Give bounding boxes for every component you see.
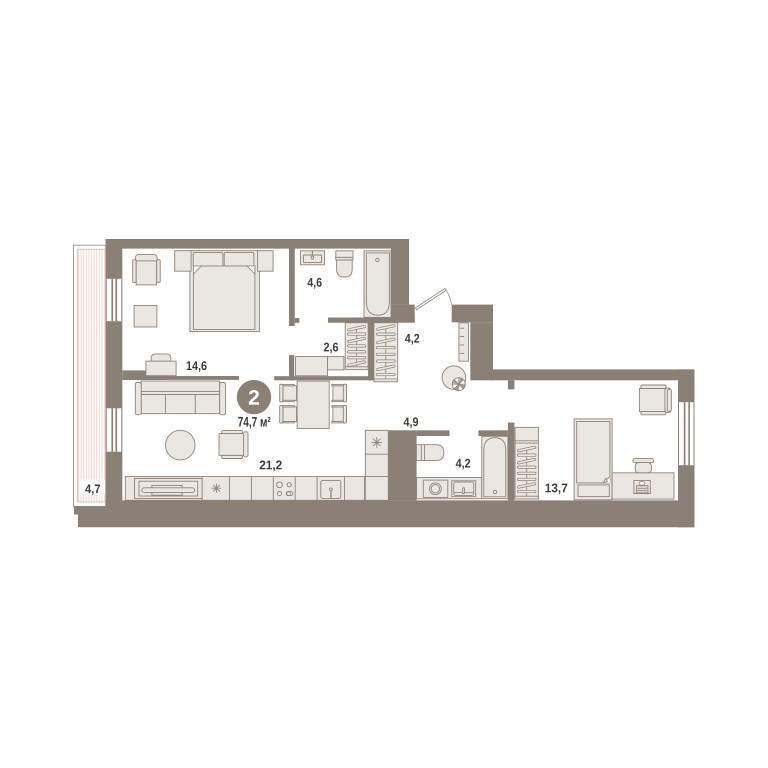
- svg-text:2: 2: [248, 387, 260, 410]
- svg-text:4,2: 4,2: [405, 332, 420, 346]
- svg-text:21,2: 21,2: [259, 458, 282, 472]
- svg-text:4,6: 4,6: [307, 276, 322, 290]
- svg-text:4,9: 4,9: [403, 415, 418, 429]
- svg-text:4,2: 4,2: [456, 456, 471, 470]
- svg-text:13,7: 13,7: [545, 481, 568, 495]
- svg-text:74,7 м²: 74,7 м²: [238, 414, 271, 430]
- svg-text:14,6: 14,6: [186, 359, 207, 373]
- svg-text:2,6: 2,6: [323, 340, 338, 354]
- svg-text:4,7: 4,7: [85, 482, 101, 496]
